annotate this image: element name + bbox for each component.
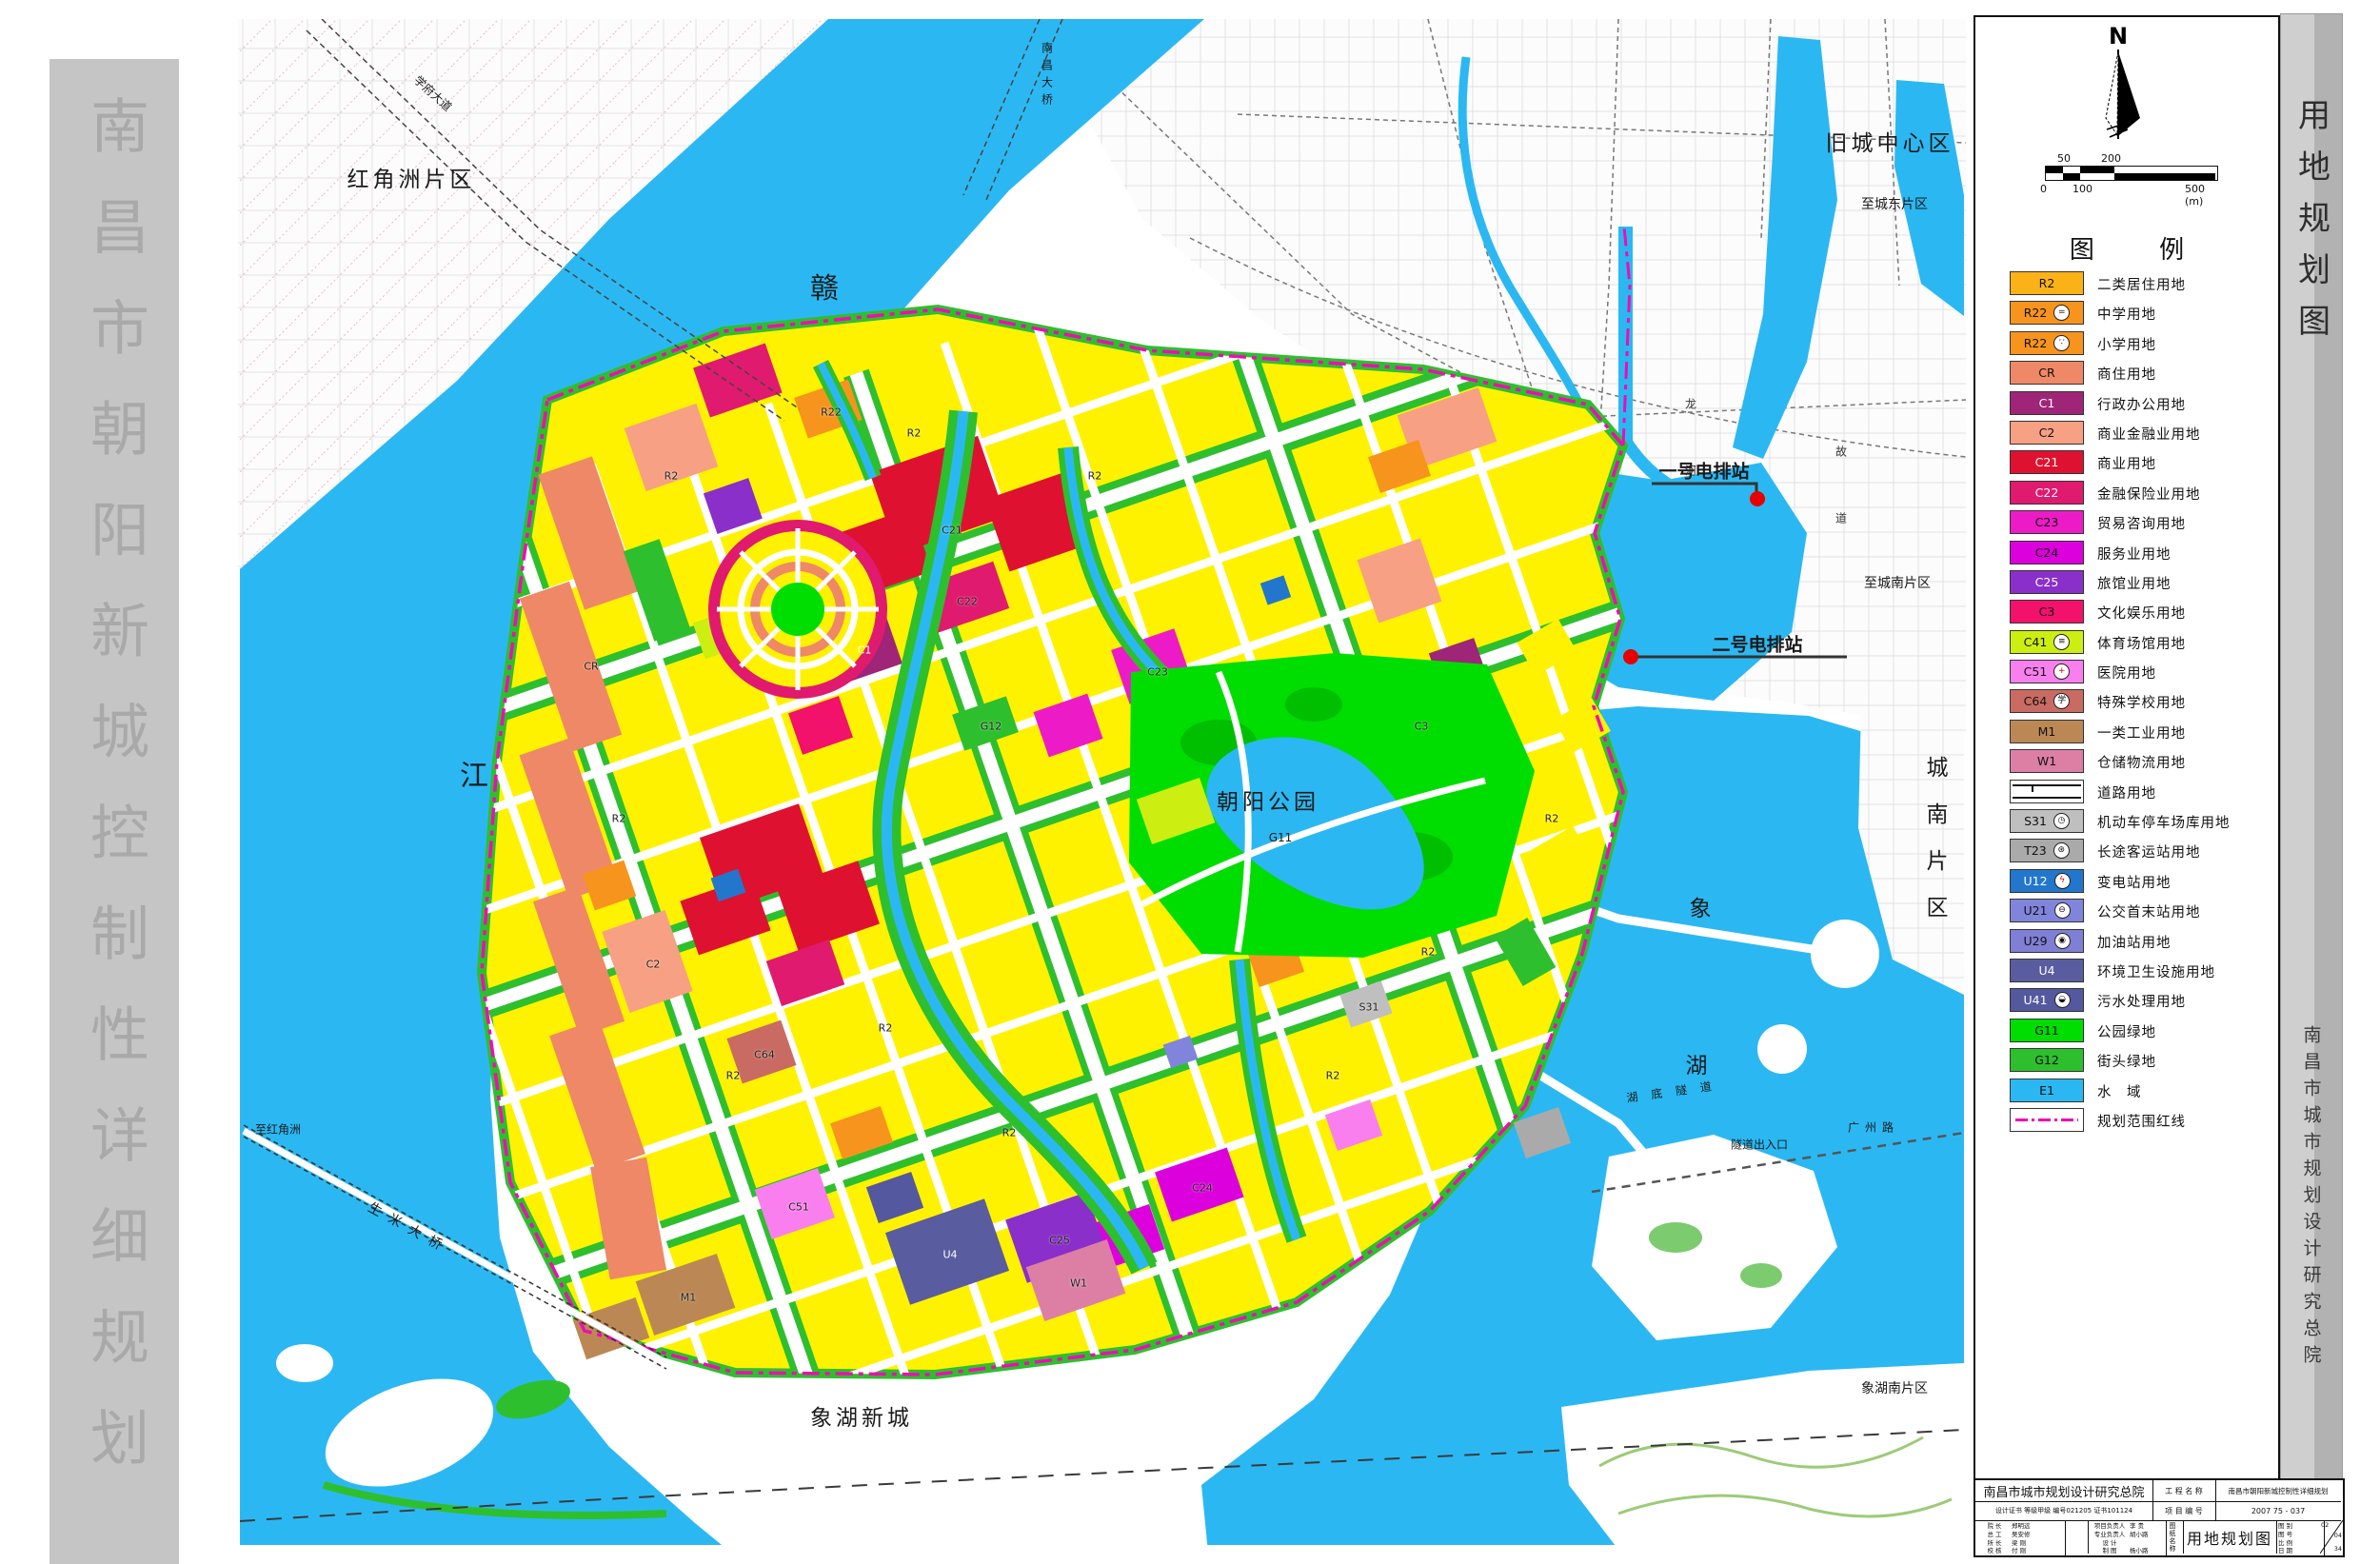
label-nanchang-bridge: 南昌大桥 xyxy=(1040,42,1056,110)
legend-swatch: C2 xyxy=(2010,421,2084,445)
page: 红角洲片区 学府大道 南昌大桥 赣 江 旧城中心区 至城东片区 一号电排站 二号… xyxy=(0,0,2380,1564)
legend-swatch: R22= xyxy=(2010,301,2084,325)
label-guangzhou-road: 广州路 xyxy=(1848,1119,1899,1136)
label-drain1: 一号电排站 xyxy=(1658,458,1749,484)
legend-code: W1 xyxy=(2037,754,2056,768)
institute-vertical: 南昌市城市规划设计研究总院 xyxy=(2299,1025,2325,1372)
legend-swatch: C41≡ xyxy=(2010,630,2084,654)
parcel-code: C51 xyxy=(788,1201,809,1214)
legend-item: CR 商住用地 xyxy=(1975,358,2278,387)
legend-item: U4 环境卫生设施用地 xyxy=(1975,956,2278,985)
drain-station-1-dot xyxy=(1750,491,1765,506)
legend-label: 街头绿地 xyxy=(2097,1051,2156,1071)
parcel-code: R2 xyxy=(879,1022,893,1035)
legend-code: M1 xyxy=(2038,724,2056,739)
legend-symbol-icon: ⊖ xyxy=(2054,902,2071,919)
legend-swatch: U4 xyxy=(2010,959,2084,982)
legend-swatch: R2 xyxy=(2010,271,2084,295)
legend-item: C51+ 医院用地 xyxy=(1975,657,2278,686)
legend-swatch: C21 xyxy=(2010,450,2084,474)
legend-swatch: C25 xyxy=(2010,570,2084,594)
legend-item: C21 商业用地 xyxy=(1975,447,2278,477)
parcel-code: C23 xyxy=(1147,666,1168,679)
legend-code: E1 xyxy=(2039,1083,2054,1098)
scale-label-50: 50 xyxy=(2057,152,2071,165)
legend-label: 文化娱乐用地 xyxy=(2097,603,2186,623)
legend-code: C64 xyxy=(2024,694,2048,708)
parcel-code: R2 xyxy=(664,470,679,483)
legend-code: C22 xyxy=(2035,485,2059,500)
drain-station-2-dot xyxy=(1623,649,1638,664)
legend-swatch: U21⊖ xyxy=(2010,899,2084,922)
label-to-east: 至城东片区 xyxy=(1861,194,1928,213)
parcel-code: S31 xyxy=(1359,1001,1379,1014)
legend-item: G12 街头绿地 xyxy=(1975,1045,2278,1075)
north-letter: N xyxy=(2109,23,2128,49)
legend-swatch: U12ϟ xyxy=(2010,869,2084,893)
legend-label: 机动车停车场库用地 xyxy=(2097,812,2231,832)
title-block: 南昌市城市规划设计研究总院 工 程 名 称 南昌市朝阳新城控制性详细规划 设计证… xyxy=(1973,1478,2345,1557)
tb-drawing-name: 用地规划图 xyxy=(2183,1520,2277,1554)
legend-label: 服务业用地 xyxy=(2097,544,2172,564)
legend-swatch: G11 xyxy=(2010,1019,2084,1042)
tb-project-label: 工 程 名 称 xyxy=(2152,1480,2216,1502)
label-jiang: 江 xyxy=(460,752,488,794)
parcel-code: G12 xyxy=(981,721,1002,733)
parcel-code: C3 xyxy=(1415,721,1429,733)
label-hu: 湖 xyxy=(1686,1047,1712,1079)
legend-code: U21 xyxy=(2023,903,2047,918)
legend-swatch xyxy=(2010,1108,2084,1132)
legend-code: T23 xyxy=(2024,843,2047,858)
label-to-hongjiaozhou: 至红角洲 xyxy=(255,1121,301,1138)
legend-item: U41◒ 污水处理用地 xyxy=(1975,985,2278,1015)
legend-item: C22 金融保险业用地 xyxy=(1975,478,2278,507)
legend-item: R2 二类居住用地 xyxy=(1975,268,2278,298)
legend-label: 水 域 xyxy=(2097,1081,2142,1101)
legend-code: C2 xyxy=(2039,426,2055,440)
scale-label-200: 200 xyxy=(2101,152,2121,165)
tb-page-top: 02 xyxy=(2321,1521,2329,1529)
legend-label: 一类工业用地 xyxy=(2097,723,2186,742)
legend-swatch: T23⊛ xyxy=(2010,839,2084,862)
legend-item: U29◉ 加油站用地 xyxy=(1975,926,2278,956)
legend-code: C21 xyxy=(2035,455,2059,469)
legend-label: 商住用地 xyxy=(2097,364,2156,384)
tb-blank xyxy=(2061,1520,2089,1554)
tb-project-no: 2007 75 - 037 xyxy=(2215,1501,2341,1521)
legend-label: 医院用地 xyxy=(2097,663,2156,683)
tb-signatures-b: 项目负责人李 贵 专业负责人胡小路 设 计 制 图杨小路 xyxy=(2088,1520,2167,1555)
legend-item: 规划范围红线 xyxy=(1975,1105,2278,1135)
label-to-south: 至城南片区 xyxy=(1864,573,1931,592)
legend-item: W1 仓储物流用地 xyxy=(1975,746,2278,776)
legend-symbol-icon: ◷ xyxy=(2053,813,2070,829)
legend-symbol-icon: 学 xyxy=(2053,693,2070,709)
legend-panel: N 50 200 0 100 500 (m) 图 例 xyxy=(1973,15,2280,1482)
legend-swatch: R22∵ xyxy=(2010,331,2084,355)
legend-item: T23⊛ 长途客运站用地 xyxy=(1975,836,2278,865)
label-old-city: 旧城中心区 xyxy=(1826,125,1954,157)
tb-cert: 设计证书 等级甲级 编号021205 证书101124 xyxy=(1975,1501,2153,1521)
legend-swatch: C51+ xyxy=(2010,660,2084,683)
parcel-code: R2 xyxy=(1421,946,1436,959)
legend-label: 旅馆业用地 xyxy=(2097,573,2172,593)
label-xiang: 象 xyxy=(1690,890,1716,922)
scale-label-0: 0 xyxy=(2040,183,2047,195)
sheet-title-vertical: 用地规划图 xyxy=(2289,98,2335,355)
plan-title-vertical: 南昌市朝阳新城控制性详细规划 xyxy=(50,95,179,1508)
label-xianghu-newtown: 象湖新城 xyxy=(810,1399,913,1432)
right-title-strip: 用地规划图 南昌市城市规划设计研究总院 xyxy=(2280,13,2343,1480)
legend-label: 二类居住用地 xyxy=(2097,274,2186,294)
legend-label: 污水处理用地 xyxy=(2097,991,2186,1011)
legend-code: C23 xyxy=(2035,515,2059,529)
label-tunnel-exit: 隧道出入口 xyxy=(1731,1137,1788,1153)
legend-title: 图 例 xyxy=(1975,230,2278,266)
parcel-code: R2 xyxy=(726,1070,741,1082)
parcel-code: M1 xyxy=(681,1292,697,1304)
legend-label: 特殊学校用地 xyxy=(2097,692,2186,712)
legend-label: 商业金融业用地 xyxy=(2097,424,2201,444)
parcel-code: R22 xyxy=(821,406,842,419)
parcel-code: C1 xyxy=(858,644,872,657)
legend-item: U12ϟ 变电站用地 xyxy=(1975,866,2278,896)
label-gudao: 故道 xyxy=(1834,445,1850,579)
legend-item: C64学 特殊学校用地 xyxy=(1975,686,2278,716)
parcel-code: R2 xyxy=(907,427,922,440)
legend-label: 公交首末站用地 xyxy=(2097,901,2201,921)
parcel-code: C25 xyxy=(1049,1235,1070,1247)
legend-item: C3 文化娱乐用地 xyxy=(1975,597,2278,626)
radial-plaza xyxy=(714,525,882,693)
legend-swatch: G12 xyxy=(2010,1048,2084,1072)
legend-label: 商业用地 xyxy=(2097,453,2156,473)
label-xianghu-south: 象湖南片区 xyxy=(1861,1378,1928,1397)
label-drain2: 二号电排站 xyxy=(1712,631,1802,657)
scale-label-500m: 500 (m) xyxy=(2185,183,2221,208)
legend-swatch: CR xyxy=(2010,361,2084,385)
legend-item: R22= 中学用地 xyxy=(1975,298,2278,327)
parcel-code: R2 xyxy=(1545,813,1559,825)
legend-code: C1 xyxy=(2039,396,2055,410)
legend-code: C24 xyxy=(2035,545,2059,560)
parcel-code: C64 xyxy=(754,1049,775,1061)
legend-code: G11 xyxy=(2034,1023,2059,1038)
legend-label: 变电站用地 xyxy=(2097,872,2172,892)
parcel-code: C2 xyxy=(646,959,661,971)
legend-swatch: C3 xyxy=(2010,600,2084,624)
left-title-strip: 南昌市朝阳新城控制性详细规划 xyxy=(50,59,179,1564)
parcel-code: R2 xyxy=(1002,1127,1017,1139)
label-chaoyang-park: 朝阳公园 xyxy=(1217,783,1319,816)
legend-code: C41 xyxy=(2024,635,2048,649)
legend-item: R22∵ 小学用地 xyxy=(1975,328,2278,358)
legend-code: U4 xyxy=(2038,963,2054,978)
tb-drawing-name-label: 图纸名称 xyxy=(2162,1520,2184,1554)
legend-code: R22 xyxy=(2024,306,2048,320)
legend-item: G11 公园绿地 xyxy=(1975,1016,2278,1045)
tb-meta-labels: 图 别 图 号 比 例 日 期 xyxy=(2276,1520,2325,1555)
legend-symbol-icon: ≡ xyxy=(2053,634,2070,650)
tb-project-name: 南昌市朝阳新城控制性详细规划 xyxy=(2215,1480,2341,1502)
legend-swatch: E1 xyxy=(2010,1079,2084,1102)
legend-label: 体育场馆用地 xyxy=(2097,633,2186,653)
legend-item: S31◷ 机动车停车场库用地 xyxy=(1975,806,2278,836)
legend-code: S31 xyxy=(2024,814,2047,828)
legend-code: C25 xyxy=(2035,575,2059,589)
legend-label: 仓储物流用地 xyxy=(2097,752,2186,772)
legend-swatch: M1 xyxy=(2010,720,2084,743)
legend-swatch: C1 xyxy=(2010,391,2084,415)
legend-item: 道路用地 xyxy=(1975,777,2278,806)
legend-label: 规划范围红线 xyxy=(2097,1111,2186,1131)
legend-label: 行政办公用地 xyxy=(2097,394,2186,414)
legend-symbol-icon: ∵ xyxy=(2053,335,2070,351)
scale-bar: 50 200 0 100 500 (m) xyxy=(2040,152,2221,196)
legend-code: C51 xyxy=(2024,664,2048,679)
tb-page-mid: 04 xyxy=(2334,1532,2342,1539)
label-gan: 赣 xyxy=(810,265,839,307)
parcel-code: C21 xyxy=(942,525,962,537)
legend-item: C1 行政办公用地 xyxy=(1975,388,2278,418)
legend-item: C25 旅馆业用地 xyxy=(1975,567,2278,597)
legend-item: C2 商业金融业用地 xyxy=(1975,418,2278,447)
legend-swatch: C24 xyxy=(2010,541,2084,564)
legend-code: R2 xyxy=(2039,276,2055,290)
legend-swatch: W1 xyxy=(2010,749,2084,773)
legend-item: C23 贸易咨询用地 xyxy=(1975,507,2278,537)
legend-swatch: U41◒ xyxy=(2010,988,2084,1012)
tb-project-no-label: 项 目 编 号 xyxy=(2152,1501,2216,1521)
legend-label: 环境卫生设施用地 xyxy=(2097,961,2215,981)
legend-code: R22 xyxy=(2024,336,2048,350)
legend-item: E1 水 域 xyxy=(1975,1076,2278,1105)
legend-label: 金融保险业用地 xyxy=(2097,484,2201,504)
legend-swatch: C64学 xyxy=(2010,689,2084,713)
legend-code: U29 xyxy=(2023,934,2047,948)
legend-item: M1 一类工业用地 xyxy=(1975,717,2278,746)
legend-symbol-icon: ⊛ xyxy=(2053,842,2070,859)
tb-institute: 南昌市城市规划设计研究总院 xyxy=(1975,1480,2153,1502)
legend-code: C3 xyxy=(2039,604,2055,619)
legend-label: 公园绿地 xyxy=(2097,1021,2156,1041)
parcel-code: R2 xyxy=(1326,1070,1340,1082)
legend-swatch: S31◷ xyxy=(2010,809,2084,833)
label-park-code: G11 xyxy=(1269,831,1293,844)
legend-label: 加油站用地 xyxy=(2097,932,2172,952)
legend-list: R2 二类居住用地 R22= 中学用地 R22∵ 小学用地 CR 商住用地 C1… xyxy=(1975,268,2278,1135)
legend-symbol-icon: = xyxy=(2053,305,2070,321)
label-longhe: 龙河 xyxy=(1683,398,1699,531)
tb-page-cell: 02 04 34 xyxy=(2320,1520,2343,1554)
tb-page-bottom: 34 xyxy=(2334,1545,2342,1553)
legend-label: 长途客运站用地 xyxy=(2097,841,2201,861)
legend-code: G12 xyxy=(2034,1053,2059,1067)
legend-symbol-icon: + xyxy=(2053,663,2070,680)
label-hongjiaozhou: 红角洲片区 xyxy=(347,161,476,193)
legend-code: U12 xyxy=(2023,874,2047,888)
parcel-code: U4 xyxy=(942,1249,957,1261)
legend-symbol-icon: ◒ xyxy=(2054,992,2071,1008)
tb-signatures-a: 院 长郑明远 总 工吴安修 所 长梁 刚 校 核付 刚 xyxy=(1975,1520,2066,1555)
legend-code: U41 xyxy=(2023,993,2047,1007)
label-chengnan: 城南片区 xyxy=(1918,756,1951,942)
north-arrow-icon: N xyxy=(1975,23,2278,147)
legend-symbol-icon: ◉ xyxy=(2054,933,2071,949)
legend-swatch: C22 xyxy=(2010,481,2084,505)
parcel-code: C22 xyxy=(957,596,978,608)
legend-label: 道路用地 xyxy=(2097,782,2156,802)
parcel-code: CR xyxy=(584,661,598,673)
parcel-code: R2 xyxy=(1088,470,1102,483)
legend-swatch: C23 xyxy=(2010,510,2084,534)
legend-item: C24 服务业用地 xyxy=(1975,538,2278,567)
legend-item: C41≡ 体育场馆用地 xyxy=(1975,627,2278,657)
legend-label: 小学用地 xyxy=(2097,334,2156,354)
legend-swatch: U29◉ xyxy=(2010,929,2084,953)
scale-label-100: 100 xyxy=(2073,183,2092,195)
parcel-code: R2 xyxy=(612,813,626,825)
parcel-code: C24 xyxy=(1192,1182,1213,1195)
parcel-code: W1 xyxy=(1070,1277,1087,1290)
legend-code: CR xyxy=(2038,366,2054,380)
legend-item: U21⊖ 公交首末站用地 xyxy=(1975,896,2278,925)
legend-swatch xyxy=(2010,780,2084,803)
legend-symbol-icon: ϟ xyxy=(2054,873,2071,889)
legend-label: 中学用地 xyxy=(2097,304,2156,324)
legend-label: 贸易咨询用地 xyxy=(2097,513,2186,533)
